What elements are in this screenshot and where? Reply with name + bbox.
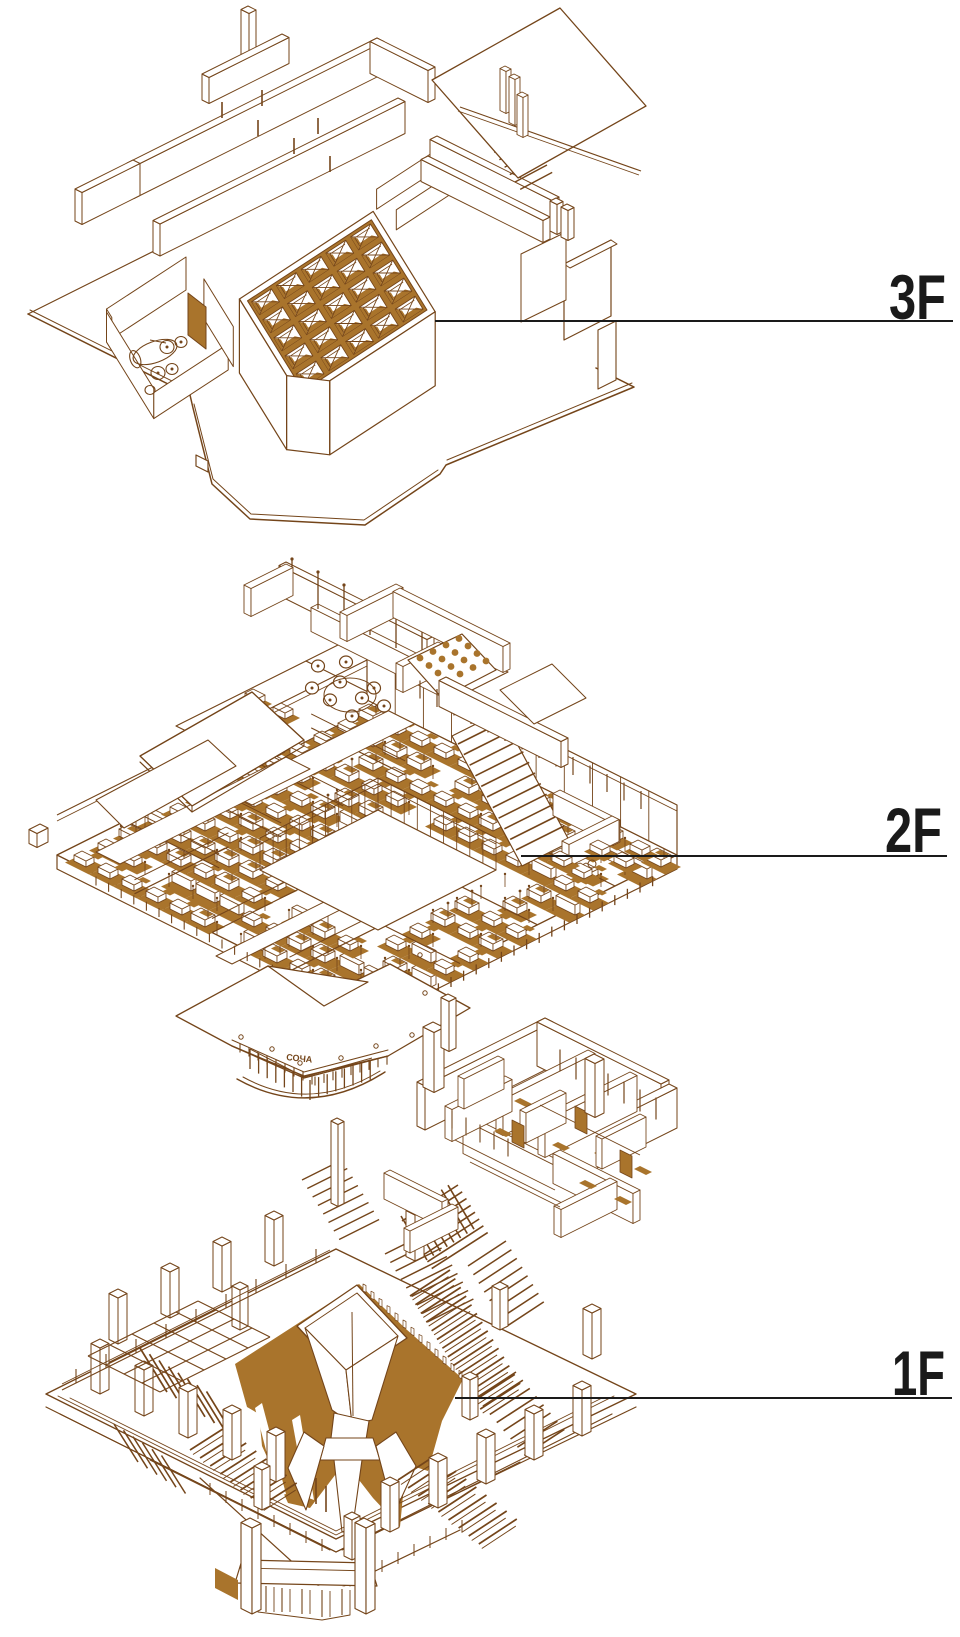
svg-text:1F: 1F <box>892 1339 945 1409</box>
svg-text:2F: 2F <box>885 796 942 866</box>
svg-text:3F: 3F <box>889 263 946 333</box>
